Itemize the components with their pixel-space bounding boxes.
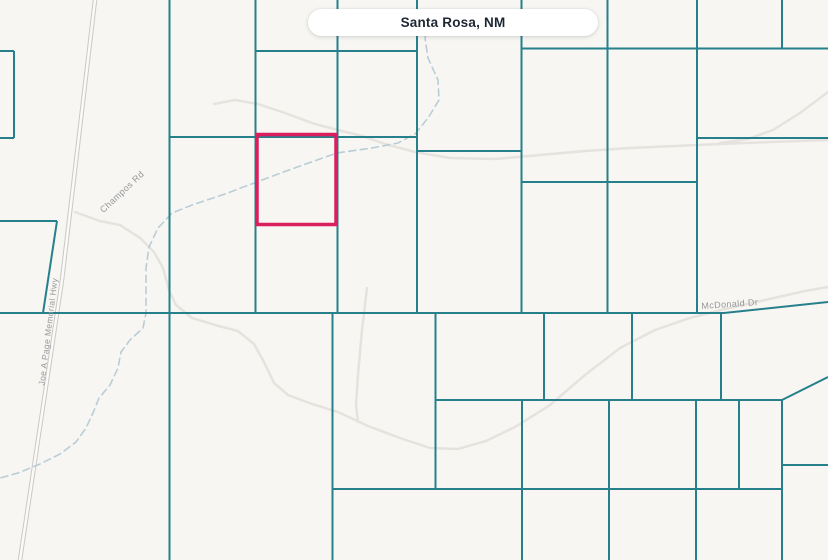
faint-road	[720, 92, 828, 143]
faint-road	[75, 212, 828, 449]
parcel-lines-layer	[0, 0, 828, 560]
map-viewport: Joe A Page Memorial HwyChampos RdMcDonal…	[0, 0, 828, 560]
faint-roads-layer	[75, 92, 828, 449]
location-pill-label: Santa Rosa, NM	[401, 15, 506, 30]
road-labels-layer: Joe A Page Memorial HwyChampos RdMcDonal…	[36, 169, 758, 386]
selected-parcel-outline[interactable]	[257, 135, 336, 225]
highlight-layer	[257, 135, 336, 225]
faint-road	[356, 288, 367, 422]
location-pill[interactable]: Santa Rosa, NM	[308, 9, 598, 36]
parcel-boundary	[782, 377, 828, 400]
road-label: Champos Rd	[98, 169, 146, 215]
parcel-map-svg[interactable]: Joe A Page Memorial HwyChampos RdMcDonal…	[0, 0, 828, 560]
road-label: McDonald Dr	[701, 297, 758, 311]
